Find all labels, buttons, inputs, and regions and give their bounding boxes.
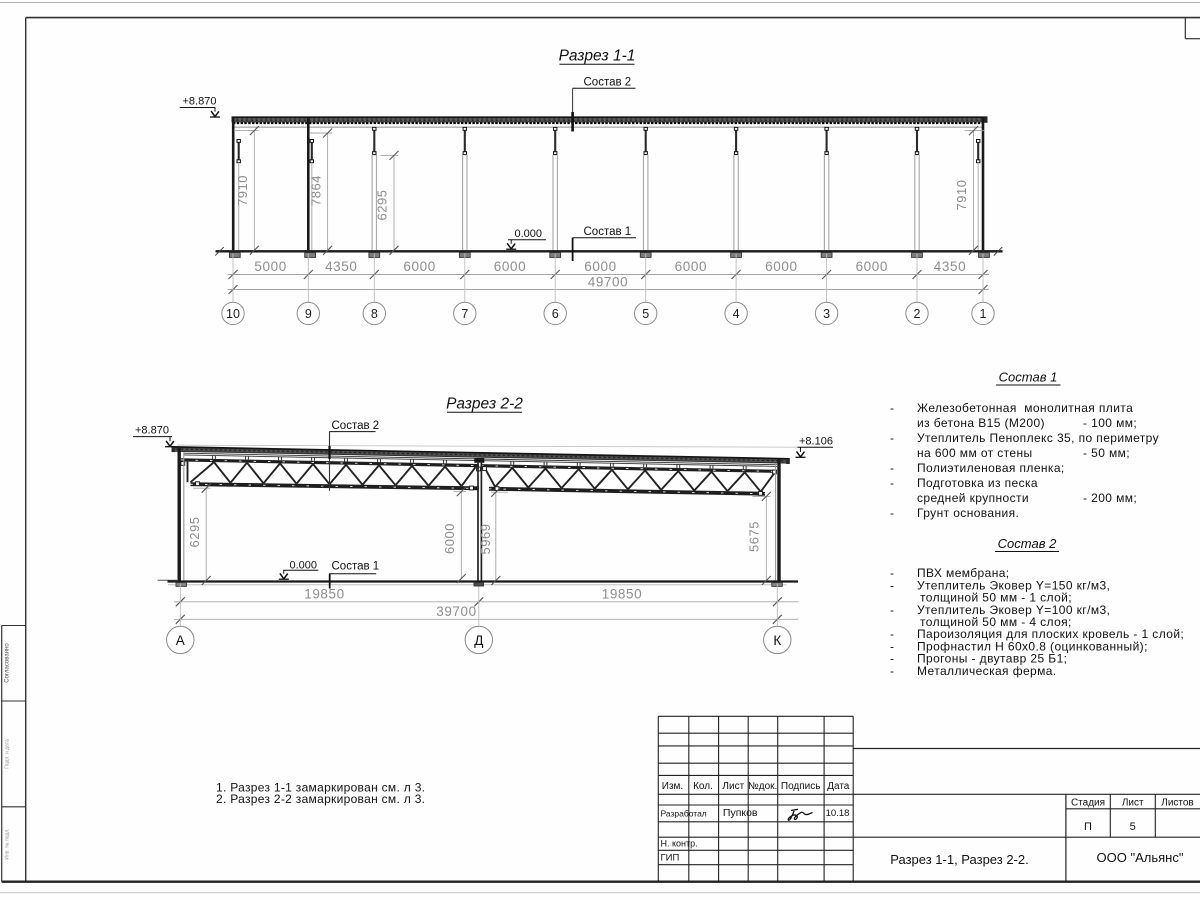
svg-text:7: 7 [461,307,468,321]
svg-text:-: - [890,603,894,617]
svg-text:Инв. № подл.: Инв. № подл. [5,828,11,859]
svg-text:4350: 4350 [934,259,966,274]
svg-text:6000: 6000 [584,259,616,274]
svg-text:6000: 6000 [442,523,457,554]
svg-text:№док.: №док. [748,781,777,792]
svg-text:Н. контр.: Н. контр. [661,839,698,849]
svg-text:1: 1 [980,307,987,321]
svg-text:-: - [890,476,894,490]
svg-text:Стадия: Стадия [1071,797,1105,808]
svg-text:2. Разрез 2-2 замаркирован см.: 2. Разрез 2-2 замаркирован см. л 3. [216,792,425,806]
svg-text:10: 10 [226,307,240,321]
svg-text:- 50 мм;: - 50 мм; [1083,446,1130,460]
svg-text:8: 8 [371,307,378,321]
svg-text:Состав 1: Состав 1 [332,561,380,573]
svg-text:Лист: Лист [722,781,744,792]
svg-text:6295: 6295 [375,190,390,221]
svg-text:0.000: 0.000 [515,228,543,240]
svg-text:Разрез 2-2: Разрез 2-2 [446,396,523,413]
svg-text:- 200 мм;: - 200 мм; [1083,491,1137,505]
svg-text:+8.870: +8.870 [135,425,169,437]
svg-text:5675: 5675 [747,521,762,552]
svg-text:ГИП: ГИП [661,853,680,864]
svg-text:6000: 6000 [675,259,707,274]
svg-text:Состав 1: Состав 1 [584,226,632,238]
svg-text:Разрез 1-1, Разрез 2-2.: Разрез 1-1, Разрез 2-2. [890,852,1028,867]
svg-text:6295: 6295 [187,517,202,548]
svg-text:Дата: Дата [827,781,850,792]
svg-text:9: 9 [305,307,312,321]
svg-text:Грунт основания.: Грунт основания. [917,506,1019,520]
svg-text:49700: 49700 [588,274,629,289]
svg-text:-: - [890,461,894,475]
svg-text:на 600 мм от стены: на 600 мм от стены [917,446,1033,460]
svg-text:2: 2 [914,307,921,321]
svg-text:10.18: 10.18 [826,808,850,819]
svg-text:6000: 6000 [494,259,526,274]
svg-text:5: 5 [1130,821,1136,833]
svg-text:-: - [890,506,894,520]
svg-text:4350: 4350 [325,259,357,274]
svg-text:К: К [773,633,781,648]
svg-text:Д: Д [474,633,483,648]
svg-text:Лист: Лист [1122,797,1144,808]
svg-text:Изм.: Изм. [662,781,683,792]
svg-text:- 100 мм;: - 100 мм; [1083,416,1137,430]
svg-text:5969: 5969 [478,524,493,555]
svg-text:Полиэтиленовая пленка;: Полиэтиленовая пленка; [917,461,1065,475]
svg-text:Листов: Листов [1161,797,1194,808]
svg-text:19850: 19850 [602,587,643,602]
svg-text:А: А [176,633,185,648]
svg-text:39700: 39700 [436,604,477,619]
svg-text:Разрез 1-1: Разрез 1-1 [559,48,636,65]
svg-text:6000: 6000 [765,259,797,274]
svg-text:-: - [890,431,894,445]
svg-text:+8.870: +8.870 [183,96,217,108]
svg-text:+8.106: +8.106 [799,435,833,447]
svg-text:из бетона В15 (М200): из бетона В15 (М200) [917,416,1045,430]
svg-text:5: 5 [642,307,649,321]
svg-text:-: - [890,664,894,678]
svg-text:средней крупности: средней крупности [917,491,1029,505]
svg-text:-: - [890,578,894,592]
svg-text:Подготовка из песка: Подготовка из песка [917,476,1038,490]
svg-text:Состав 1: Состав 1 [999,370,1058,385]
svg-text:П: П [1084,821,1092,833]
svg-text:5000: 5000 [254,259,286,274]
svg-text:Разработал: Разработал [661,808,707,818]
svg-text:7910: 7910 [954,180,969,211]
svg-text:Согласованно: Согласованно [5,643,11,683]
svg-text:19850: 19850 [304,587,345,602]
svg-text:6000: 6000 [403,259,435,274]
svg-text:-: - [890,401,894,415]
svg-text:Состав 2: Состав 2 [998,536,1057,551]
svg-text:ООО "Альянс": ООО "Альянс" [1097,850,1184,865]
svg-text:Подп. и дата: Подп. и дата [5,739,11,769]
svg-text:6: 6 [552,307,559,321]
svg-text:3: 3 [823,307,830,321]
svg-text:6000: 6000 [856,259,888,274]
svg-text:7910: 7910 [235,175,250,206]
svg-text:Железобетонная монолитная пли: Железобетонная монолитная плита [917,401,1133,415]
svg-text:Пупков: Пупков [723,807,758,819]
svg-text:Металлическая ферма.: Металлическая ферма. [917,664,1057,678]
svg-text:Кол.: Кол. [693,781,713,792]
svg-text:4: 4 [733,307,740,321]
svg-text:Подпись: Подпись [781,781,821,792]
svg-text:Состав 2: Состав 2 [584,77,632,89]
svg-text:7864: 7864 [308,175,323,206]
svg-text:Состав 2: Состав 2 [332,420,380,432]
svg-text:Утеплитель Пеноплекс 35, по пе: Утеплитель Пеноплекс 35, по периметру [917,431,1159,445]
